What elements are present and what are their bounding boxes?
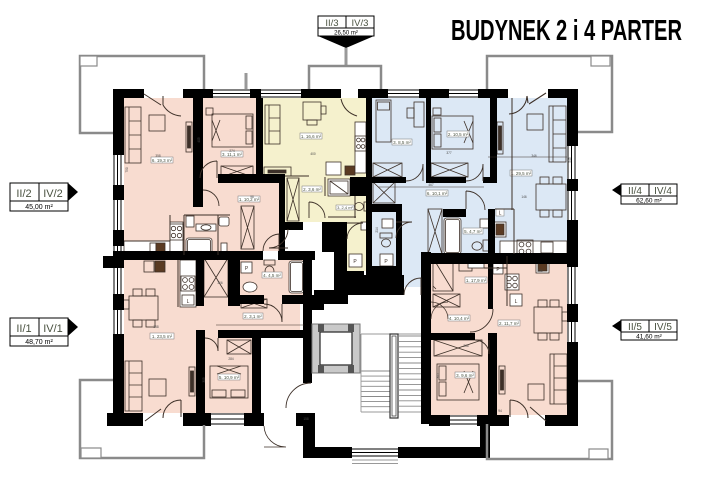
svg-text:236: 236 bbox=[537, 269, 543, 273]
svg-text:II/4: II/4 bbox=[628, 186, 642, 197]
svg-text:750: 750 bbox=[125, 167, 129, 173]
svg-text:5. 4,7 m²: 5. 4,7 m² bbox=[464, 229, 482, 234]
svg-text:41,60 m²: 41,60 m² bbox=[636, 334, 662, 341]
svg-text:2. 3,6 m²: 2. 3,6 m² bbox=[303, 187, 321, 192]
svg-text:62,60 m²: 62,60 m² bbox=[636, 198, 662, 205]
svg-text:II/3: II/3 bbox=[325, 18, 338, 29]
svg-text:94: 94 bbox=[498, 409, 502, 413]
svg-text:284: 284 bbox=[228, 357, 234, 361]
svg-text:467: 467 bbox=[428, 183, 434, 187]
svg-text:L: L bbox=[187, 299, 190, 305]
svg-text:IV/4: IV/4 bbox=[654, 186, 672, 197]
svg-text:274: 274 bbox=[229, 149, 235, 153]
svg-text:II/2: II/2 bbox=[16, 188, 31, 200]
svg-text:1. 17,9 m²: 1. 17,9 m² bbox=[466, 278, 487, 283]
svg-text:3. 9,6 m²: 3. 9,6 m² bbox=[456, 373, 474, 378]
svg-text:II/5: II/5 bbox=[628, 322, 642, 333]
svg-text:268: 268 bbox=[463, 344, 469, 348]
svg-text:4. 4,5 m²: 4. 4,5 m² bbox=[263, 273, 281, 278]
svg-text:98: 98 bbox=[250, 195, 254, 199]
svg-text:L: L bbox=[515, 299, 518, 305]
svg-text:2. 10,5 m²: 2. 10,5 m² bbox=[448, 132, 469, 137]
svg-text:146: 146 bbox=[521, 195, 527, 199]
svg-text:L: L bbox=[499, 211, 502, 217]
svg-text:400: 400 bbox=[310, 152, 316, 156]
svg-text:158: 158 bbox=[303, 417, 309, 421]
svg-text:II/1: II/1 bbox=[16, 323, 31, 335]
svg-text:5. 10,9 m²: 5. 10,9 m² bbox=[219, 375, 240, 380]
svg-text:3. 2,4 m²: 3. 2,4 m² bbox=[337, 205, 353, 210]
svg-text:214: 214 bbox=[375, 227, 379, 233]
svg-text:545: 545 bbox=[568, 157, 572, 163]
svg-text:405: 405 bbox=[197, 137, 201, 143]
svg-text:305: 305 bbox=[202, 377, 206, 383]
svg-text:1. 16,6 m²: 1. 16,6 m² bbox=[301, 134, 322, 139]
svg-text:346: 346 bbox=[531, 154, 537, 158]
svg-text:1. 23,5 m²: 1. 23,5 m² bbox=[152, 334, 173, 339]
svg-text:IV/1: IV/1 bbox=[43, 323, 63, 335]
svg-text:358: 358 bbox=[153, 325, 159, 329]
svg-text:377: 377 bbox=[446, 151, 452, 155]
svg-text:6. 19,3 m²: 6. 19,3 m² bbox=[152, 158, 173, 163]
svg-text:26,50 m²: 26,50 m² bbox=[334, 31, 358, 37]
svg-text:IV/3: IV/3 bbox=[352, 18, 369, 29]
svg-text:1. 29,5 m²: 1. 29,5 m² bbox=[511, 171, 532, 176]
svg-text:45,00 m²: 45,00 m² bbox=[25, 204, 53, 211]
svg-text:IV/2: IV/2 bbox=[43, 188, 63, 200]
svg-text:BUDYNEK 2 i 4 PARTER: BUDYNEK 2 i 4 PARTER bbox=[451, 15, 682, 47]
svg-text:3. 8,5 m²: 3. 8,5 m² bbox=[393, 140, 411, 145]
svg-text:358: 358 bbox=[155, 154, 161, 158]
svg-text:48,70 m²: 48,70 m² bbox=[25, 339, 53, 346]
svg-text:306: 306 bbox=[217, 281, 223, 285]
svg-text:4. 10,4 m²: 4. 10,4 m² bbox=[449, 316, 470, 321]
svg-text:6. 10,1 m²: 6. 10,1 m² bbox=[427, 191, 448, 196]
svg-text:2. 3,1 m²: 2. 3,1 m² bbox=[244, 314, 262, 319]
svg-text:IV/5: IV/5 bbox=[654, 322, 672, 333]
svg-text:305: 305 bbox=[436, 373, 440, 379]
svg-text:2. 11,7 m²: 2. 11,7 m² bbox=[499, 321, 519, 326]
